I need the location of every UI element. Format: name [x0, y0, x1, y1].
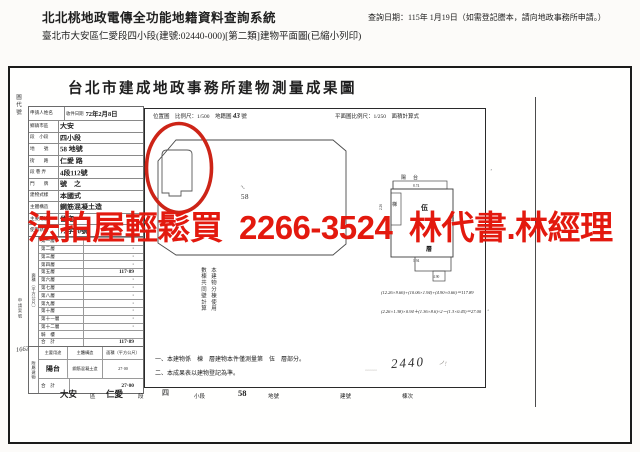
info-row-value: 大安: [59, 121, 143, 132]
info-row-value: 58 地號: [59, 144, 143, 155]
info-row: 門 牌 號 之: [29, 178, 143, 190]
dimension-1-94: 1.94: [413, 259, 419, 263]
floor-row: 合 計 117·89: [39, 338, 143, 346]
floor-label: 第四層: [39, 261, 84, 268]
attachments-side-label: 附屬建物: [29, 347, 39, 393]
applicant-label: 申請人姓名: [29, 107, 65, 120]
floor-row: 第十二層 ·: [39, 323, 143, 331]
floor-rows: 第一層 · 第二層 · 第三層 ·: [39, 237, 143, 346]
floor-area-value: 117·89: [84, 339, 143, 345]
applicant-row: 申請人姓名 收件日期 72年2月8日: [29, 107, 143, 120]
plan-note-1: 一、本建物係 棟 層建物本件僅測量第 伍 層部分。: [155, 354, 305, 363]
bottom-block-label: 棟次: [402, 392, 413, 400]
floor-label: 第十二層: [39, 324, 84, 331]
cadastral-map-number: 43: [233, 112, 240, 120]
bottom-parcel-value: 58: [238, 388, 247, 398]
floor-label: 騎 樓: [39, 331, 84, 338]
info-row: 建物式樣 本國式: [29, 190, 143, 202]
floor-area-value: 117·89: [84, 269, 143, 275]
info-row-label: 段 巷 弄: [29, 167, 59, 178]
attachments-header-use: 主要用途: [39, 347, 68, 359]
survey-map-title: 台北市建成地政事務所建物測量成果圖: [68, 77, 357, 98]
floorplan-balcony: [393, 181, 447, 189]
attachment-area: 27·00: [103, 360, 143, 378]
floor-label: 合 計: [39, 339, 84, 346]
receive-date-value: 72年2月8日: [86, 109, 118, 118]
info-row-value: 四小段: [59, 132, 143, 143]
vertical-note-2: 數棟共同壁計算: [199, 267, 207, 363]
floor-row: 第十一層 ·: [39, 315, 143, 323]
scanned-sheet: 台北市建成地政事務所建物測量成果圖 圖代號 申請人姓名 收件日期 72年2月8日…: [8, 66, 632, 444]
area-calculation-1: (12.26×9.66)+(10.06×1.94)+(4.90×0.66)＝11…: [381, 290, 483, 297]
attachments-header-structure: 主體構造: [68, 347, 103, 359]
floor-label: 第五層: [39, 269, 84, 276]
info-row-value: 4段112號: [59, 167, 143, 178]
info-row-label: 地 號: [29, 144, 59, 155]
floor-row: 第七層 ·: [39, 284, 143, 292]
parcel-number: 58: [241, 193, 249, 201]
bottom-district-label: 區: [90, 392, 96, 400]
scan-speck: ʻ: [487, 308, 489, 316]
bottom-section-value: 仁愛: [106, 388, 123, 400]
info-row-label: 鄉鎮市區: [29, 121, 59, 132]
scan-speck: ʼ: [490, 168, 492, 176]
info-row: 段 巷 弄 4段112號: [29, 166, 143, 178]
info-row: 段 小段 四小段: [29, 132, 143, 144]
floor-area-value: ·: [84, 301, 143, 307]
floor-label: 第九層: [39, 300, 84, 307]
building-info-table: 申請人姓名 收件日期 72年2月8日 鄉鎮市區 大安 段 小段 四小段: [28, 106, 144, 394]
floor-area-value: ·: [84, 262, 143, 268]
screenshot-root: 北北桃地政電傳全功能地籍資料查詢系統 查詢日期：115年 1月19日（如需登記謄…: [0, 0, 640, 452]
info-row-value: 本國式: [59, 190, 143, 201]
foreclosure-ad-text: 法拍屋輕鬆買 2266-3524 林代書.林經理: [0, 201, 640, 249]
bottom-subsection-label: 小段: [194, 392, 205, 400]
floor-row: 第十層 ·: [39, 307, 143, 315]
floor-area-value: ·: [84, 285, 143, 291]
attachments-table: 附屬建物 主要用途 主體構造 面積（平方公尺） 陽台 鋼筋混凝土造 27·00 …: [29, 346, 143, 393]
area-calculation-2: (2.26×1.38)×0.94＋(1.36×8.6)÷2－(1.3×0.45)…: [381, 309, 483, 316]
floor-label: 第十一層: [39, 316, 84, 323]
info-row: 地 號 58 地號: [29, 143, 143, 155]
info-row-label: 段 小段: [29, 133, 59, 144]
floor-area-value: ·: [84, 316, 143, 322]
info-row-label: 街 路: [29, 156, 59, 167]
case-number-label: 申請案號: [17, 298, 23, 319]
floor-area-value: ·: [84, 308, 143, 314]
floor-area-value: ·: [84, 254, 143, 260]
floor-row: 第六層 ·: [39, 276, 143, 284]
attachment-use: 陽台: [39, 360, 68, 378]
floorplan-scale: 平面圖比例尺：1/250 面積計算式: [335, 112, 419, 120]
info-row: 鄉鎮市區 大安: [29, 120, 143, 132]
floor-row: 第八層 ·: [39, 291, 143, 299]
floor-row: 第四層 ·: [39, 260, 143, 268]
document-subtitle: 臺北市大安區仁愛段四小段(建號:02440-000)[第二類]建物平面圖(已縮小…: [42, 28, 361, 42]
floor-area-table: 面積（平方公尺） 第一層 · 第二層 ·: [29, 236, 143, 346]
attachment-total-row: 合 計 27·00: [39, 378, 143, 393]
floor-row: 第三層 ·: [39, 253, 143, 261]
attachment-structure: 鋼筋混凝土造: [68, 360, 103, 378]
info-row-label: 建物式樣: [29, 191, 59, 202]
info-row-value: 仁愛 路: [59, 156, 143, 167]
floor-area-value: ·: [84, 277, 143, 283]
floor-label: 第七層: [39, 285, 84, 292]
bottom-section-label: 段: [138, 392, 144, 400]
sheet-code-label: 圖代號: [14, 94, 22, 117]
floorplan-extension: [415, 257, 451, 271]
system-title: 北北桃地政電傳全功能地籍資料查詢系統: [42, 7, 276, 26]
dimension-4-90: 4.90: [433, 275, 439, 279]
location-map-scale: 位置圖 比例尺：1/500 地籍圖 43 號: [153, 112, 247, 120]
bottom-parcel-label: 地號: [268, 392, 279, 400]
area-side-label: 面積（平方公尺）: [29, 237, 39, 346]
floor-area-value: ·: [84, 324, 143, 330]
bottom-building-no-label: 建號: [340, 392, 351, 400]
floor-label: 第十層: [39, 308, 84, 315]
floor-label: 第八層: [39, 292, 84, 299]
floor-label: 第六層: [39, 277, 84, 284]
floor-row: 第九層 ·: [39, 299, 143, 307]
attachment-row: 陽台 鋼筋混凝土造 27·00: [39, 359, 143, 378]
handwritten-building-number: 2440: [390, 354, 425, 372]
info-row-label: 門 牌: [29, 179, 59, 190]
attachments-header-area: 面積（平方公尺）: [103, 347, 143, 359]
info-row: 街 路 仁愛 路: [29, 155, 143, 167]
query-date: 查詢日期：115年 1月19日（如需登記謄本，請向地政事務所申請。）: [368, 12, 606, 23]
plan-note-2: 二、本成果表以建物登記為準。: [155, 368, 239, 377]
floor-area-value: ·: [84, 293, 143, 299]
bottom-subsection-value: 四: [162, 388, 169, 398]
attachments-header-row: 主要用途 主體構造 面積（平方公尺）: [39, 347, 143, 359]
balcony-label: 陽台: [401, 174, 425, 181]
floor-row: 騎 樓: [39, 330, 143, 338]
dimension-8-74: 8.74: [413, 184, 419, 188]
floor-label: 第三層: [39, 254, 84, 261]
form-divider-line: [535, 97, 536, 407]
vertical-notes: 本建物分棟使用 數棟共同壁計算: [197, 267, 217, 363]
red-ellipse: [147, 124, 212, 213]
vertical-note-1: 本建物分棟使用: [209, 267, 217, 363]
handwriting-scribble: ﹏﹏: [365, 363, 377, 372]
receive-date-label: 收件日期: [66, 111, 84, 117]
info-row-value: 號 之: [59, 179, 143, 190]
floor-row: 第五層 117·89: [39, 268, 143, 276]
cadastral-map-number-suffix: 號: [241, 114, 247, 120]
bottom-district-value: 大安: [60, 388, 77, 400]
